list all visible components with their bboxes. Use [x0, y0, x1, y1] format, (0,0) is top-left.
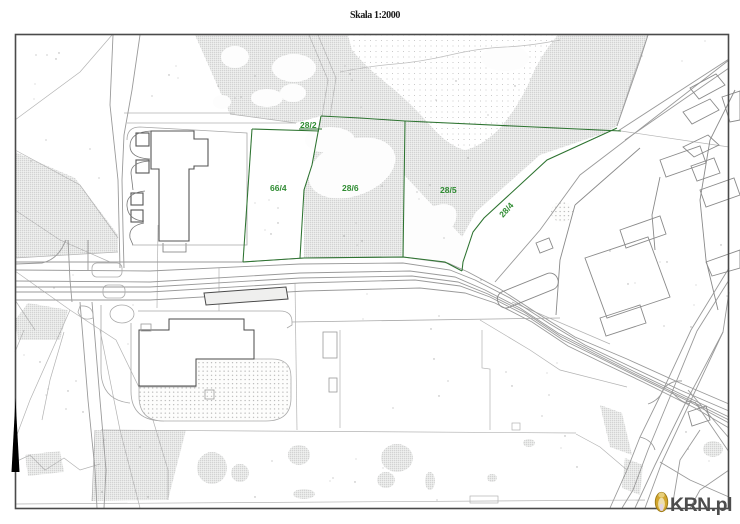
svg-text:28/5: 28/5	[440, 185, 457, 195]
svg-text:KRN.pl: KRN.pl	[670, 494, 732, 516]
svg-text:66/4: 66/4	[270, 183, 287, 193]
svg-text:28/6: 28/6	[342, 183, 359, 193]
svg-text:28/2: 28/2	[300, 120, 317, 130]
svg-text:Skala 1:2000: Skala 1:2000	[350, 10, 400, 21]
